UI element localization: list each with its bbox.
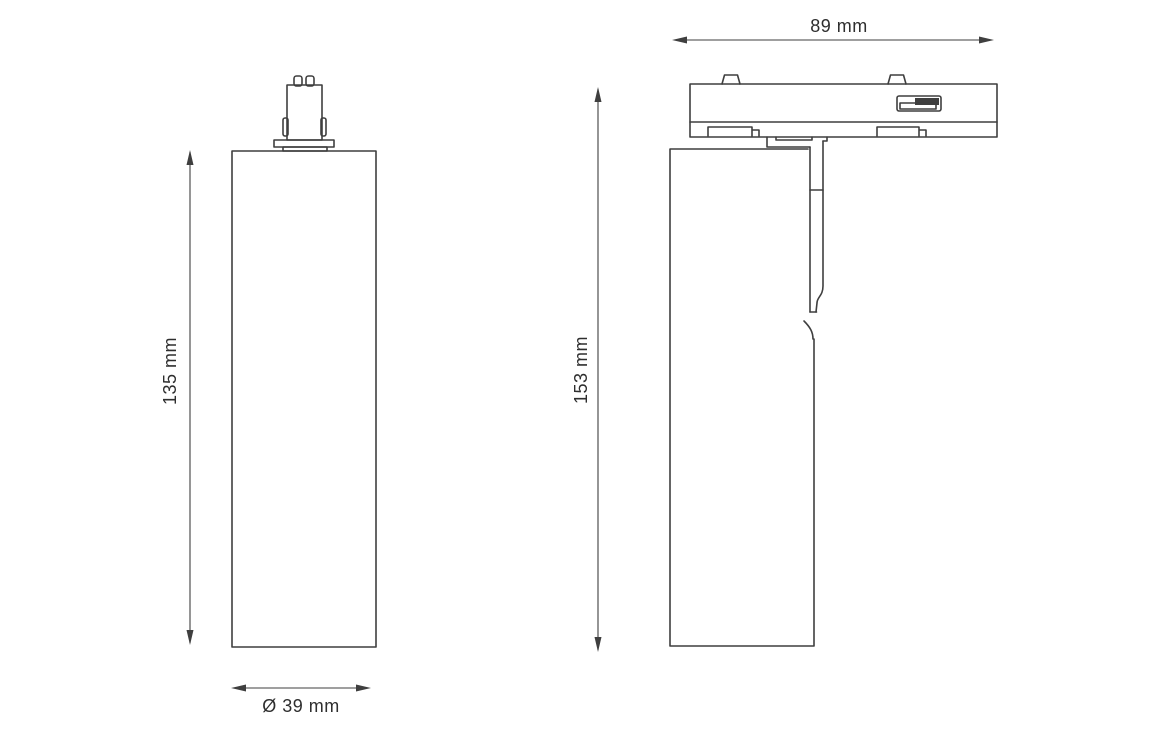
front-body-outline (232, 151, 376, 647)
arrow-right-icon (356, 685, 371, 692)
front-height-label: 135 mm (160, 337, 180, 405)
front-connector-flange (274, 140, 334, 147)
arrow-up-icon (595, 87, 602, 102)
technical-drawing-canvas: 135 mm Ø 39 mm 89 mm 153 mm (0, 0, 1160, 733)
dimension-front-height: 135 mm (160, 150, 194, 645)
front-diameter-label: Ø 39 mm (262, 696, 340, 716)
front-connector-stem (287, 85, 322, 140)
front-view (232, 76, 376, 647)
arrow-down-icon (187, 630, 194, 645)
dimension-front-diameter: Ø 39 mm (231, 685, 371, 717)
dimension-side-width: 89 mm (672, 16, 994, 44)
side-arm-right-edge (816, 141, 823, 312)
side-adapter-outline (690, 84, 997, 137)
dimension-side-height: 153 mm (571, 87, 602, 652)
arrow-up-icon (187, 150, 194, 165)
side-height-label: 153 mm (571, 336, 591, 404)
front-connector-nub-right (321, 118, 326, 136)
arrow-left-icon (672, 37, 687, 44)
side-adapter-pin-left (722, 75, 740, 84)
side-body-outline (670, 149, 814, 646)
side-width-label: 89 mm (810, 16, 868, 36)
side-adapter-pin-right (888, 75, 906, 84)
arrow-left-icon (231, 685, 246, 692)
front-connector-nub-left (283, 118, 288, 136)
arrow-down-icon (595, 637, 602, 652)
arrow-right-icon (979, 37, 994, 44)
side-view (670, 75, 997, 646)
side-arm-body-transition (804, 321, 813, 339)
side-adapter-latch-left (708, 127, 759, 136)
side-adapter-latch-right (877, 127, 926, 136)
side-bracket (767, 137, 827, 147)
technical-drawing: 135 mm Ø 39 mm 89 mm 153 mm (0, 0, 1160, 733)
